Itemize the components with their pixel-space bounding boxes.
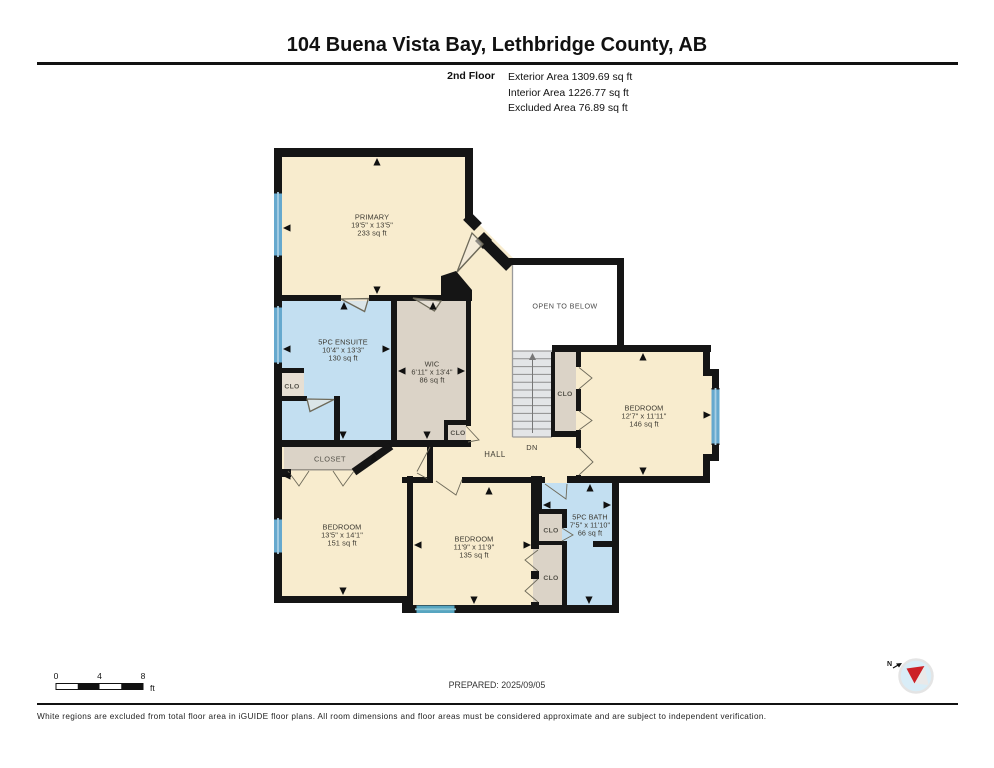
svg-text:HALL: HALL <box>484 450 506 459</box>
svg-text:135 sq ft: 135 sq ft <box>459 551 488 560</box>
svg-text:151 sq ft: 151 sq ft <box>327 539 356 548</box>
svg-text:CLO: CLO <box>543 528 558 535</box>
svg-text:CLO: CLO <box>543 575 558 582</box>
svg-text:CLO: CLO <box>284 384 299 391</box>
svg-text:CLOSET: CLOSET <box>314 455 346 464</box>
svg-text:OPEN TO BELOW: OPEN TO BELOW <box>532 302 597 311</box>
svg-text:CLO: CLO <box>557 391 572 398</box>
svg-text:86 sq ft: 86 sq ft <box>419 376 444 385</box>
svg-text:66 sq ft: 66 sq ft <box>578 529 602 538</box>
svg-text:130 sq ft: 130 sq ft <box>328 354 357 363</box>
svg-text:233 sq ft: 233 sq ft <box>357 229 386 238</box>
svg-text:146 sq ft: 146 sq ft <box>629 420 658 429</box>
svg-text:DN: DN <box>526 443 537 452</box>
svg-text:N: N <box>887 661 892 668</box>
svg-text:CLO: CLO <box>450 430 465 437</box>
